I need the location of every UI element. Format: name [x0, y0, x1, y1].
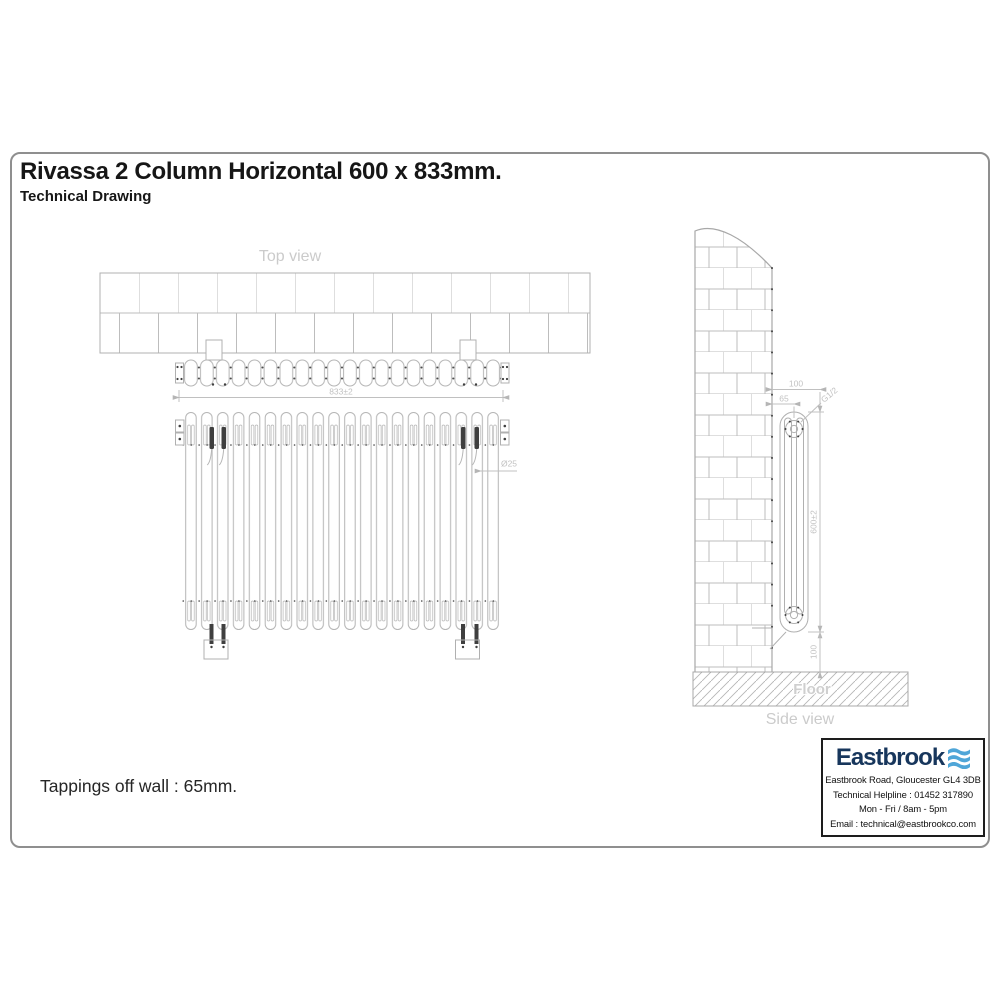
front-view: Ø25 — [176, 412, 518, 659]
tapping-flange-bottom — [785, 607, 804, 624]
vendor-name: Eastbrook — [836, 744, 944, 772]
width-dimension: 833±2 — [179, 387, 503, 403]
vendor-address: Eastbrook Road, Gloucester GL4 3DB — [823, 773, 983, 788]
front-header-detail — [183, 424, 501, 446]
bracket-top-left — [206, 340, 222, 360]
vendor-logo: Eastbrook — [823, 743, 983, 773]
side-view: 100 65 G1/2 600±2 100 Floor Side view — [690, 224, 908, 728]
wave-bars-icon — [948, 747, 970, 769]
radiator-side-section — [780, 412, 808, 632]
tapping-flange-top — [785, 421, 804, 438]
vendor-hours: Mon - Fri / 8am - 5pm — [823, 802, 983, 817]
technical-drawing: Top view 833±2 — [0, 0, 1000, 1000]
end-cap-right — [501, 363, 509, 383]
end-cap-left — [176, 363, 184, 383]
vendor-email: Email : technical@eastbrookco.com — [823, 817, 983, 832]
tappings-note: Tappings off wall : 65mm. — [40, 776, 237, 797]
vendor-box: Eastbrook Eastbrook Road, Gloucester GL4… — [821, 738, 985, 837]
tapping-thread-text: G1/2 — [819, 385, 840, 405]
vendor-helpline: Technical Helpline : 01452 317890 — [823, 788, 983, 803]
tube-diameter-text: Ø25 — [501, 459, 517, 469]
page: Rivassa 2 Column Horizontal 600 x 833mm.… — [0, 0, 1000, 1000]
wall-to-tapping-dim-text: 65 — [779, 394, 789, 404]
floor-clearance-dim-text: 100 — [809, 645, 819, 659]
radiator-top-view — [183, 359, 501, 387]
front-footer-detail — [183, 598, 501, 624]
top-view-label: Top view — [259, 248, 322, 265]
width-dimension-text: 833±2 — [329, 387, 353, 397]
wall-top-view — [100, 273, 590, 353]
top-view: Top view 833±2 — [100, 248, 590, 402]
bracket-top-right — [460, 340, 476, 360]
side-view-label: Side view — [766, 711, 835, 728]
wall-to-front-dim-text: 100 — [789, 379, 803, 389]
floor-label: Floor — [793, 681, 831, 698]
wall-side-view — [690, 224, 776, 674]
height-dim-text: 600±2 — [809, 510, 819, 534]
